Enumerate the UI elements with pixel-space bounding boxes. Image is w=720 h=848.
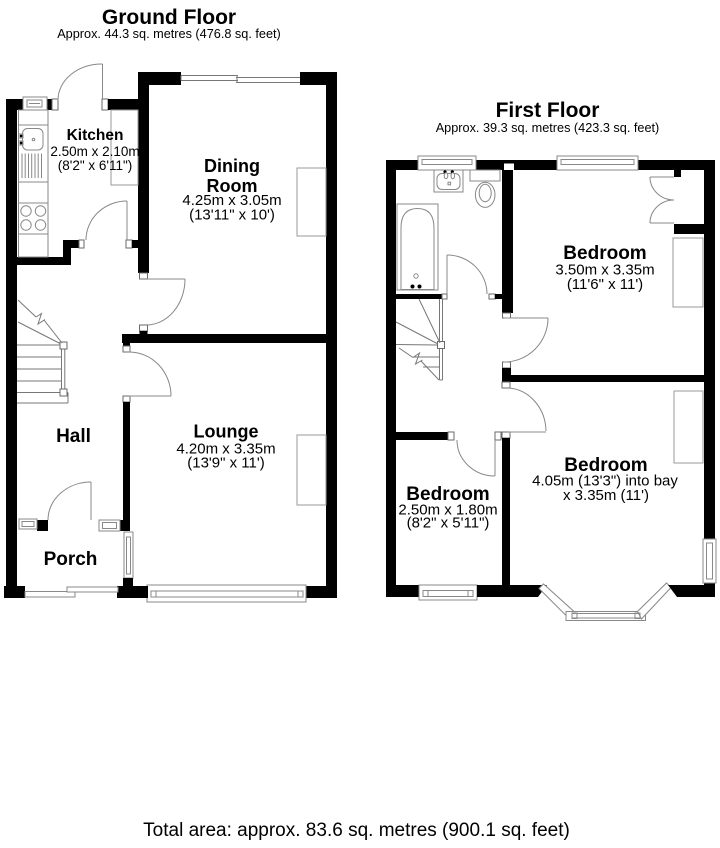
svg-text:(13'9" x 11'): (13'9" x 11') xyxy=(187,455,264,472)
svg-text:Ground Floor: Ground Floor xyxy=(102,6,236,29)
svg-text:Lounge: Lounge xyxy=(194,422,259,442)
svg-text:2.50m x 2.10m: 2.50m x 2.10m xyxy=(50,144,139,159)
svg-text:Dining: Dining xyxy=(204,156,260,176)
svg-text:Kitchen: Kitchen xyxy=(67,127,124,144)
svg-text:(13'11" x 10'): (13'11" x 10') xyxy=(189,207,275,224)
svg-text:Approx. 39.3 sq. metres (423.3: Approx. 39.3 sq. metres (423.3 sq. feet) xyxy=(436,121,660,135)
svg-text:(8'2" x 5'11"): (8'2" x 5'11") xyxy=(407,515,490,532)
svg-text:Approx. 44.3 sq. metres (476.8: Approx. 44.3 sq. metres (476.8 sq. feet) xyxy=(57,27,281,41)
svg-text:Hall: Hall xyxy=(56,426,91,447)
svg-text:x 3.35m (11'): x 3.35m (11') xyxy=(563,487,649,504)
svg-text:Total area: approx. 83.6 sq. m: Total area: approx. 83.6 sq. metres (900… xyxy=(143,820,570,841)
svg-text:First Floor: First Floor xyxy=(496,99,600,122)
svg-text:Porch: Porch xyxy=(44,549,98,570)
svg-text:(8'2" x 6'11"): (8'2" x 6'11") xyxy=(58,158,133,173)
svg-text:(11'6" x 11'): (11'6" x 11') xyxy=(567,276,643,293)
